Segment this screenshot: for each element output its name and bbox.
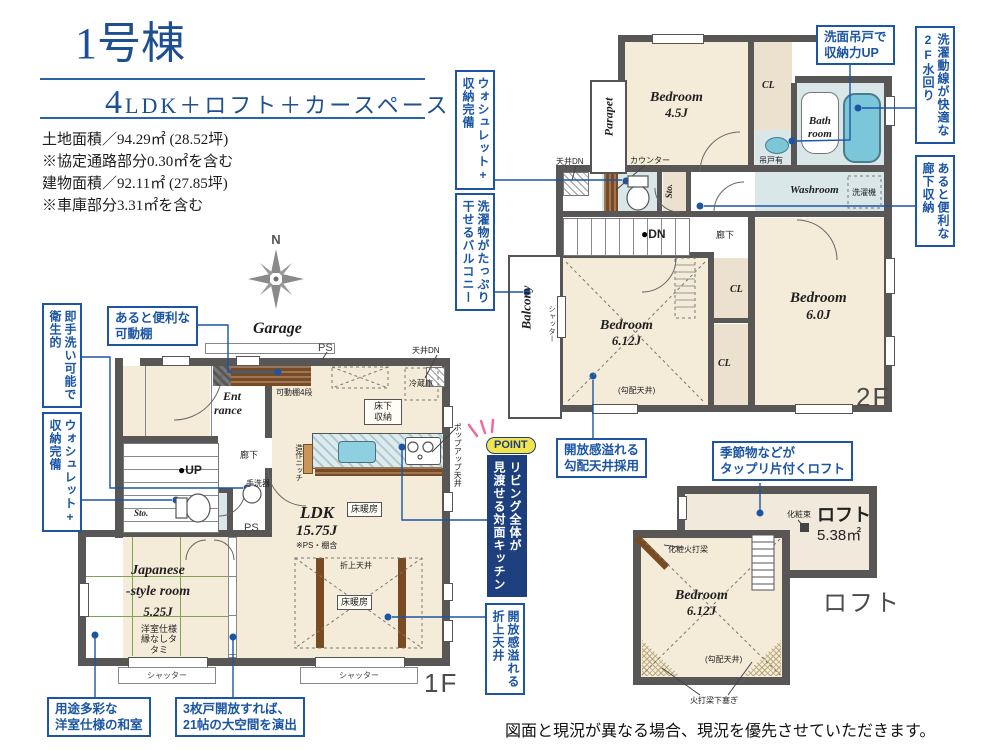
- f1-niche: [303, 444, 313, 474]
- f2-window: [652, 34, 704, 44]
- f1-window: [443, 406, 453, 428]
- loft-wall: [633, 677, 790, 685]
- loft-wall: [677, 486, 877, 494]
- callout-balcony: 洗濯物がたっぷり干せるバルコニー: [455, 193, 495, 311]
- loft-floor-tag: ロフト: [823, 583, 901, 618]
- ldk-label: LDK: [300, 503, 334, 523]
- f1-shutter-box: シャッター: [300, 667, 418, 684]
- f1-floorheat-label2: 床暖房: [337, 595, 372, 610]
- floorplan-page: 1号棟 4LDK＋ロフト＋カースペース 土地面積／94.29㎡ (28.52坪)…: [0, 0, 1000, 750]
- bathroom-label: Bathroom: [808, 115, 832, 140]
- land-area-note: ※協定通路部分0.30㎡を含む: [42, 150, 233, 171]
- callout-washlet-2f: ウォシュレット+収納完備: [455, 70, 495, 190]
- f2-dn-label: ●DN: [641, 228, 666, 242]
- f1-up-label: ●UP: [178, 464, 202, 478]
- f1-three-panel-door: [228, 537, 237, 658]
- washroom-label: Washroom: [790, 184, 839, 197]
- f1-window: [79, 583, 89, 617]
- f2-wall: [708, 252, 714, 409]
- loft-wall: [782, 530, 790, 685]
- loft-beam-cover-label: 火打梁下塞ぎ: [690, 696, 738, 705]
- f2-ceiling-dn-label: 天井DN: [556, 157, 584, 166]
- f2-hanging-cabinet-label: 吊戸有: [759, 156, 783, 165]
- compass-star-icon: [244, 247, 308, 311]
- balcony-label: Balcony: [520, 285, 535, 329]
- f2-stairs: [563, 218, 690, 256]
- f2-wall: [563, 211, 888, 217]
- loft-bedroom-label: Bedroom6.12J: [675, 588, 728, 620]
- callout-coffered-ceiling: 開放感溢れる折上天井: [485, 603, 525, 695]
- f1-beam-right: [398, 558, 406, 648]
- loft-sloped-ceiling-label: (勾配天井): [705, 655, 742, 664]
- f1-ps-mid-label: PS: [244, 522, 259, 535]
- f2-window: [885, 96, 895, 126]
- f2-wall: [602, 165, 888, 172]
- f1-garage-door: [205, 343, 335, 354]
- callout-vanity-cabinet: 洗面吊戸で収納力UP: [816, 25, 895, 65]
- f1-floor-tag: 1F: [424, 668, 458, 699]
- f1-shelf-corner: [213, 366, 231, 386]
- building-area: 建物面積／92.11㎡ (27.85坪): [42, 172, 228, 193]
- f2-wall: [795, 76, 888, 83]
- f1-window: [236, 356, 260, 366]
- f2-sloped-ceiling-label: (勾配天井): [618, 386, 655, 395]
- loft-window: [678, 496, 687, 520]
- f2-toilet-counter: [604, 174, 618, 211]
- f1-stove: [405, 437, 441, 465]
- f2-floor-tag: 2F: [856, 382, 890, 413]
- loft-wall: [790, 570, 877, 578]
- parapet-label: Parapet: [602, 98, 616, 137]
- f2-wall: [791, 83, 797, 170]
- f2-window: [557, 296, 566, 338]
- callout-washlet-1f: ウォシュレット+収納完備: [42, 412, 82, 532]
- f2-washer-label: 洗濯機: [852, 188, 876, 197]
- f1-underfloor-storage-label: 床下収納: [364, 399, 402, 425]
- callout-movable-shelf: あると便利な可動棚: [107, 306, 198, 346]
- f1-wall: [265, 468, 272, 532]
- page-title: 1号棟: [75, 22, 185, 66]
- ldk-note-label: ※PS・棚含: [296, 541, 337, 550]
- point-badge: POINT: [486, 437, 536, 454]
- f2-window: [795, 404, 853, 414]
- loft-size-label: 5.38㎡: [817, 527, 861, 544]
- f1-kitchen-sink: [338, 441, 376, 463]
- f2-window: [885, 336, 895, 366]
- f1-entrance-tile: [145, 362, 212, 440]
- f1-stairs: [123, 443, 219, 533]
- land-area: 土地面積／94.29㎡ (28.52坪): [42, 128, 228, 149]
- f2-wall: [657, 172, 662, 213]
- f2-basin: [765, 137, 789, 154]
- callout-laundry-line: 洗濯動線が快適な2F水回り: [915, 26, 955, 144]
- callout-three-doors: 3枚戸開放すれば、21帖の大空間を演出: [175, 697, 305, 737]
- callout-loft-storage: 季節物などがタップリ片付くロフト: [712, 441, 853, 481]
- f1-coffered-ceiling-label: 折上天井: [340, 561, 372, 570]
- callout-sloped-ceiling: 開放感溢れる勾配天井採用: [556, 438, 647, 478]
- f1-handbasin-label: 手洗器: [246, 479, 270, 488]
- f2-wall: [748, 211, 755, 409]
- building-area-note: ※車庫部分3.31㎡を含む: [42, 194, 203, 215]
- f2-wall: [714, 318, 750, 323]
- f2-cl-top-label: CL: [762, 80, 775, 92]
- loft-wall: [633, 530, 790, 538]
- f1-shutter-box: シャッター: [118, 667, 216, 684]
- f1-window: [162, 356, 190, 366]
- loft-name-label: ロフト: [817, 505, 871, 526]
- f2-ceiling-down-hatch: [563, 172, 589, 196]
- compass-rose: N: [244, 232, 308, 316]
- f2-cl-low-label: CL: [718, 358, 731, 370]
- f2-shutter-label: シャッター: [547, 305, 556, 343]
- loft-beam-label: 化粧火打梁: [668, 545, 708, 554]
- disclaimer-text: 図面と現況が異なる場合、現況を優先させていただきます。: [505, 717, 935, 741]
- ldk-size-label: 15.75J: [296, 523, 337, 540]
- f1-popup-ceiling-label: ポップアップ天井: [453, 423, 462, 487]
- f1-movable-shelf: [231, 366, 311, 386]
- f1-shelf-label: 可動棚4段: [276, 388, 312, 397]
- callout-japanese-room: 用途多彩な洋室仕様の和室: [47, 697, 151, 737]
- title-rule-bottom: [40, 117, 425, 119]
- loft-post-label: 化粧束: [787, 510, 811, 519]
- callout-hall-storage: あると便利な廊下収納: [915, 155, 955, 247]
- f1-corridor-label: 廊下: [240, 450, 258, 460]
- f2-storage-label: Sto.: [664, 184, 674, 198]
- loft-post-marker: [800, 523, 809, 532]
- f1-wall: [115, 358, 123, 538]
- f1-window: [443, 492, 453, 512]
- compass-north-label: N: [244, 232, 308, 247]
- title-rule-top: [40, 78, 425, 80]
- f2-window: [592, 404, 638, 414]
- f2-counter-label: カウンター: [630, 156, 670, 165]
- f1-ps-top-label: PS: [318, 342, 333, 355]
- f1-storage-label: Sto.: [134, 508, 148, 518]
- loft-wall: [633, 530, 641, 685]
- f2-wall: [748, 42, 754, 172]
- point-note: リビング全体が見渡せる対面キッチン: [487, 455, 527, 597]
- f2-corridor-label: 廊下: [716, 230, 734, 240]
- japanese-room-note: 洋室仕様縁なしタタミ: [137, 624, 181, 655]
- f1-niche-label: 造作ニッチ: [294, 444, 303, 482]
- f1-window: [443, 620, 453, 642]
- bedroom60-label: Bedroom6.0J: [790, 290, 847, 325]
- f1-wall: [115, 436, 218, 443]
- f2-bathtub: [843, 93, 881, 163]
- loft-wall: [869, 486, 877, 577]
- garage-label: Garage: [253, 320, 302, 338]
- f1-window: [443, 583, 453, 601]
- f2-cl-mid-label: CL: [730, 284, 743, 296]
- japanese-room-label: Japanese-style room5.25J: [118, 560, 198, 623]
- f2-wall: [686, 172, 691, 213]
- f1-beam-left: [316, 558, 324, 648]
- callout-handwash: 即手洗い可能で衛生的: [42, 303, 82, 408]
- f1-fridge-label: 冷蔵庫: [409, 379, 433, 388]
- bedroom612-label: Bedroom6.12J: [600, 318, 653, 350]
- f1-ceiling-dn-label: 天井DN: [412, 346, 440, 355]
- bedroom45-label: Bedroom4.5J: [650, 90, 703, 122]
- f2-window: [885, 258, 895, 294]
- f1-counter-front: [315, 467, 442, 476]
- f1-floorheat-label: 床暖房: [347, 502, 382, 517]
- entrance-label: Entrance: [222, 390, 242, 418]
- f1-wall: [227, 488, 233, 532]
